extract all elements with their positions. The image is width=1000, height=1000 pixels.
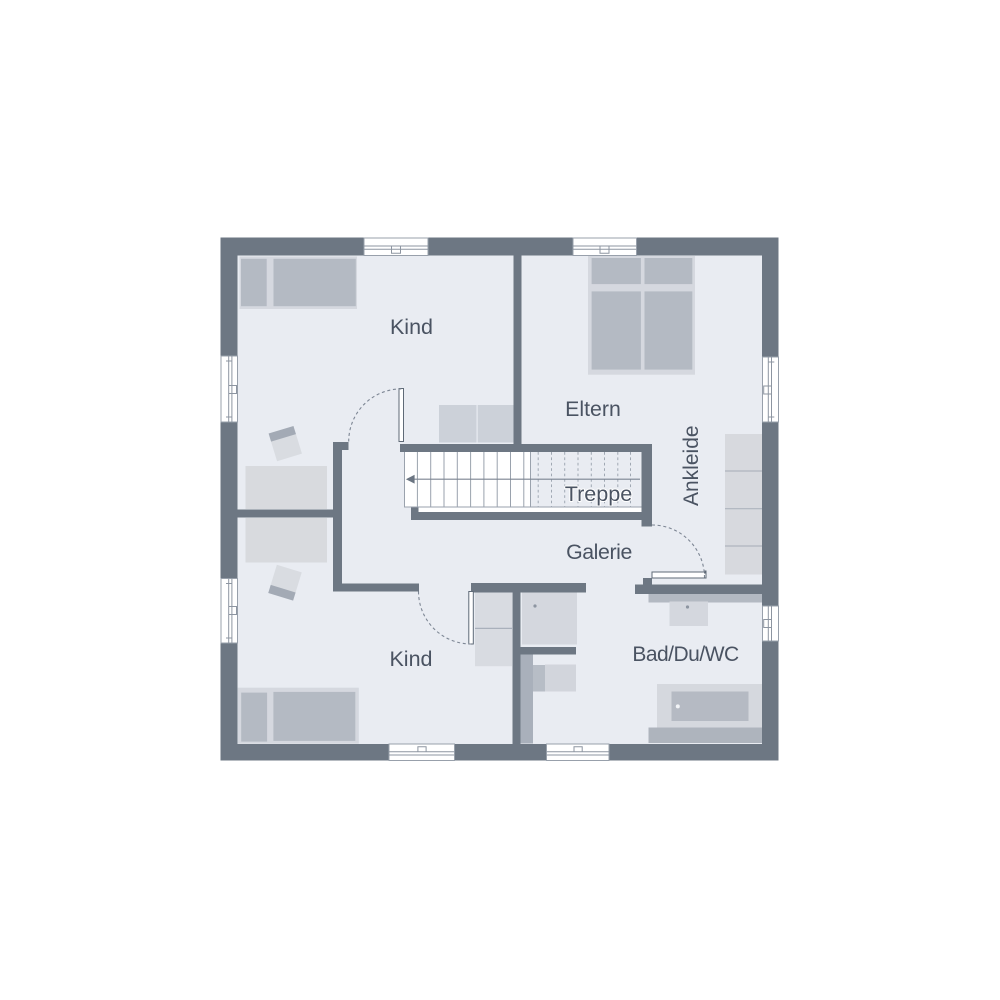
svg-text:Kind: Kind xyxy=(389,647,432,671)
svg-text:Galerie: Galerie xyxy=(566,540,632,564)
svg-text:Bad/Du/WC: Bad/Du/WC xyxy=(632,643,739,666)
svg-text:Kind: Kind xyxy=(390,315,433,339)
svg-text:Treppe: Treppe xyxy=(565,481,633,506)
svg-text:Eltern: Eltern xyxy=(565,397,621,421)
svg-text:Ankleide: Ankleide xyxy=(680,425,703,506)
